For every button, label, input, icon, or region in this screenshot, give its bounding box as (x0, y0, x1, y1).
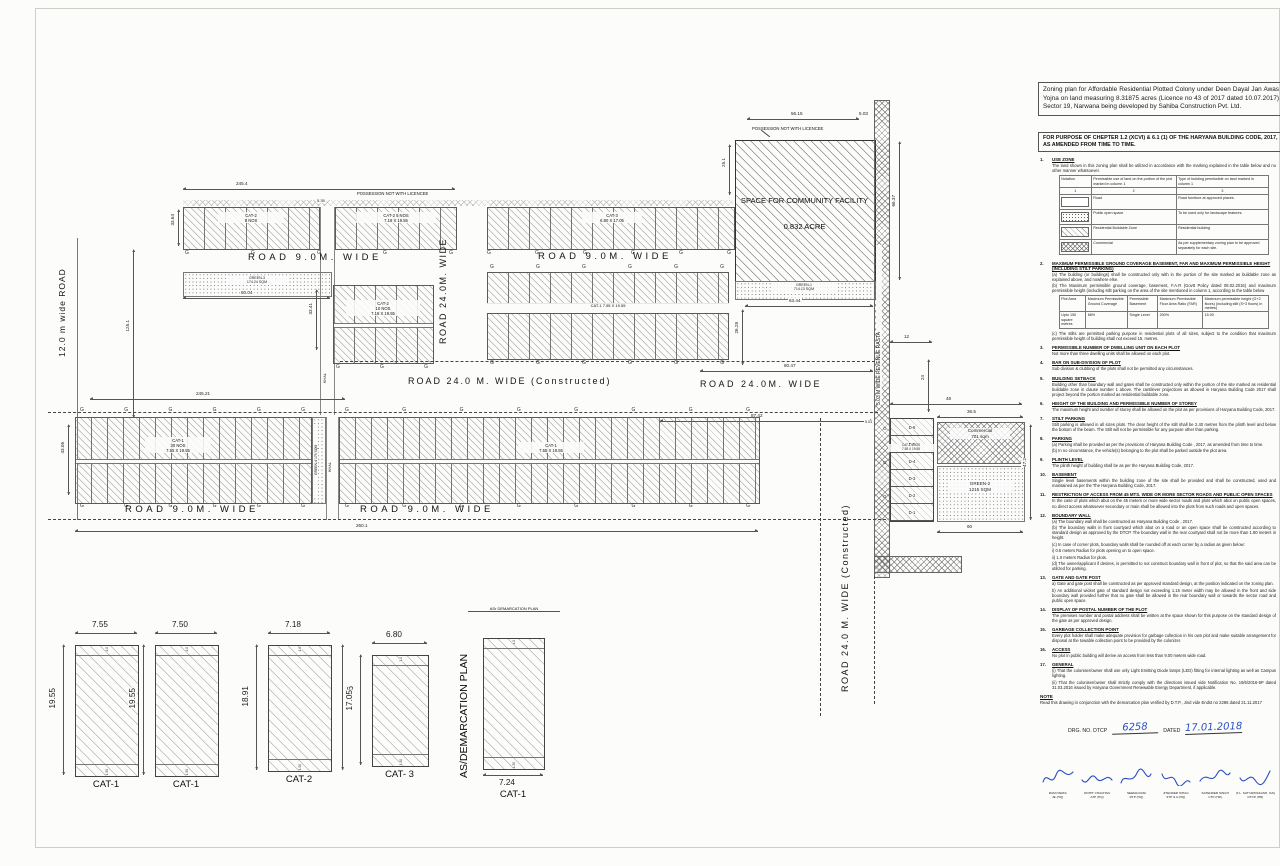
table-cell (1059, 210, 1091, 225)
table-cell: Residential building (1176, 225, 1269, 240)
signature-block: JITENDER SIHAGSTP & A (HQ) (1156, 768, 1195, 799)
note-paragraph: The plinth height of building shall be a… (1052, 463, 1276, 468)
plot-block-label-cat2-8nos: CAT-2 8 NOS (218, 212, 284, 223)
gate-mark: G (345, 503, 349, 509)
front-courtyard-line (156, 764, 218, 765)
plot-column-d: D-6D-5D-4D-3D-2D-1 (890, 418, 934, 522)
back-strip-dim: 1.0 (105, 647, 109, 651)
note-heading: MAXIMUM PERMISSIBLE GROUND COVERAGE BASE… (1052, 261, 1276, 271)
plot-d-cell: D-6 (891, 419, 933, 436)
gate-marks-row: GGGGGG (80, 407, 305, 413)
demarcation-depth-dim: 17.05 (345, 690, 354, 711)
note-paragraph: (c) In case of corner plots, boundary wa… (1052, 542, 1276, 547)
dim-label-36-5: 36.5 (966, 409, 977, 414)
demarcation-depth-dim: 18.91 (241, 686, 250, 707)
drg-dated-label: DATED (1163, 728, 1180, 734)
signatory-post: JE (HQ) (1039, 795, 1076, 799)
back-strip-dim: 1.0 (298, 647, 302, 651)
dim-line-36-5 (937, 417, 1023, 418)
road-24m-constructed-label: ROAD 24.0 M. WIDE (Constructed) (408, 376, 612, 386)
signatory-post: DTCP (HR) (1236, 795, 1275, 799)
front-courtyard-line (269, 759, 331, 760)
note-item: 13.GATE AND GATE POSTa) Gate and gate po… (1040, 575, 1276, 604)
table-cell: As per supplementary zoning plan to be a… (1176, 240, 1269, 255)
gate-mark: G (301, 407, 305, 413)
table-cell: 2 (1091, 188, 1176, 195)
plot-row-gap (334, 323, 433, 328)
gate-mark: G (746, 407, 750, 413)
demarcation-plot-2: 1.0 1.50 (155, 645, 219, 777)
note-body: GATE AND GATE POSTa) Gate and gate post … (1052, 575, 1276, 604)
note-number: 10. (1040, 472, 1049, 490)
gate-mark: G (679, 250, 683, 256)
note-number: 4. (1040, 360, 1049, 372)
note-heading: HEIGHT OF THE BUILDING AND PERMISSIBLE N… (1052, 401, 1276, 406)
green-label-line: 1215 SQM (948, 487, 1012, 493)
signature-block: (T.L. SATYAPRAKASH, IAS)DTCP (HR) (1235, 768, 1276, 799)
block-label-line: 7.55 X 19.55 (888, 448, 934, 452)
dim-label-63-44: 63.44 (788, 298, 802, 303)
table-cell: To be used only for landscape features. (1176, 210, 1269, 225)
note-item: 3.PERMISSIBLE NUMBER OF DWELLING UNIT ON… (1040, 345, 1276, 357)
green-1-label: GREEN-1 714.13 SQM (772, 283, 836, 292)
block-label-line: 7.55 X 19.55 (519, 448, 583, 453)
gate-mark: G (574, 407, 578, 413)
green-3-label: GREEN-3 174.24 SQM (227, 276, 287, 285)
dim-line-60-04 (183, 298, 330, 299)
note-number: 17. (1040, 662, 1049, 690)
note-heading: NOTE (1040, 694, 1274, 699)
signature-block: ROHIT CHAUHANATP (HQ) (1077, 768, 1116, 799)
table-header-cell: Type of building permissible on land mar… (1176, 176, 1269, 188)
note-item: 9.PLINTH LEVELThe plinth height of build… (1040, 457, 1276, 469)
dim-line-260-1 (75, 531, 758, 532)
demarcation-plot-5: 1.0 1.50 (483, 638, 545, 770)
drg-number-handwritten: 6258 (1112, 721, 1158, 735)
road-24m-label-right: ROAD 24.0M. WIDE (700, 379, 822, 389)
gate-mark: G (689, 407, 693, 413)
table-header-cell: Maximum Permissible Floor Area Ratio (FA… (1158, 296, 1203, 312)
dim-label-5-35: 5.35 (316, 198, 326, 203)
front-strip-dim: 1.50 (298, 764, 302, 770)
note-body: RESTRICTION OF ACCESS FROM 45 MTS. WIDE … (1052, 492, 1276, 510)
road-24m-centerline-upper (340, 361, 875, 362)
plot-d-cell: D-4 (891, 453, 933, 470)
dim-label-260-1: 260.1 (355, 523, 369, 528)
gate-mark: G (257, 407, 261, 413)
gate-marks-row: GGGGGGGG (345, 407, 750, 413)
note-body: BUILDING SETBACKBuilding other than boun… (1052, 376, 1276, 399)
road-9m-label-top-right: ROAD 9.0M. WIDE (538, 251, 672, 262)
plot-d-label: D-6 (908, 425, 917, 430)
dim-line-47-2 (1030, 425, 1031, 520)
gate-mark: G (720, 264, 724, 270)
road-9m-label-bottom-left: ROAD 9.0M. WIDE (125, 504, 259, 515)
road-9m-label-top-left: ROAD 9.0M. WIDE (248, 252, 382, 263)
green-2-label: GREEN-2 1215 SQM (948, 481, 1012, 492)
dim-label-245-4: 245.4 (235, 181, 249, 186)
note-body: MAXIMUM PERMISSIBLE GROUND COVERAGE BASE… (1052, 261, 1276, 343)
green-label-line: 714.13 SQM (772, 287, 836, 291)
table-cell: Residential Buildable Zone (1091, 225, 1176, 240)
gate-mark: G (689, 503, 693, 509)
back-courtyard-line (484, 648, 544, 649)
table-row: Upto 150 square metres66%Single Level200… (1059, 312, 1269, 328)
dim-label-12: 12 (903, 334, 910, 339)
block-label-line: 7.18 X 19.55 (357, 218, 435, 223)
community-facility-acreage: 0.832 ACRE (740, 222, 869, 231)
note-paragraph: b) An additional wicket gate of standard… (1052, 588, 1276, 603)
note-text: Read this drawing in conjunction with th… (1040, 700, 1274, 705)
front-courtyard-line (76, 764, 138, 765)
gate-mark: G (582, 264, 586, 270)
table-cell: 15.00 (1203, 312, 1269, 328)
note-heading: GATE AND GATE POST (1052, 575, 1276, 580)
drg-date-handwritten: 17.01.2018 (1185, 721, 1243, 735)
revenue-rasta-foot (874, 556, 962, 573)
front-strip-dim: 1.50 (512, 762, 516, 768)
table-cell: 66% (1086, 312, 1128, 328)
demarcation-depth-dim: 19.55 (128, 688, 137, 709)
revenue-rasta-label: 5.03 M WIDE REVENUE RASTA (876, 245, 882, 405)
note-body: PARKING(a) Parking shall be provided as … (1052, 436, 1276, 455)
signatory-post: STP & A (HQ) (1157, 795, 1194, 799)
road-24m-vertical-label: ROAD 24.0M. WIDE (438, 228, 448, 344)
gate-mark: G (517, 407, 521, 413)
note-item: 10.BASEMENTSingle level basements within… (1040, 472, 1276, 490)
dim-line-25-1 (729, 145, 730, 195)
block-label-line: 8 NOS (219, 218, 283, 223)
note-paragraph: (a) The building (or buildings) shall be… (1052, 272, 1276, 282)
demarcation-width-dim: 7.50 (172, 620, 188, 629)
note-number: 6. (1040, 401, 1049, 413)
front-strip-dim: 1.50 (185, 769, 189, 775)
road-24m-right-dashed-edge (820, 418, 821, 716)
possession-label-1: POSSESSION NOT WITH LICENCEE (357, 191, 428, 196)
signatory-post: ATP (HQ) (1078, 795, 1115, 799)
note-number: 2. (1040, 261, 1049, 343)
note-heading: ACCESS (1052, 647, 1276, 652)
front-strip-dim: 1.50 (399, 759, 403, 765)
demarcation-depth-dim-line (256, 645, 257, 770)
dim-line-12 (890, 342, 932, 343)
plot-block-label-cat1-30nos: CAT-1 30 NOS 7.55 X 19.55 (145, 437, 211, 453)
note-paragraph: (b) In no circumstance, the vehicle(s) b… (1052, 448, 1276, 453)
front-strip-dim: 1.50 (105, 769, 109, 775)
table-cell: 1 (1059, 188, 1091, 195)
dim-line-24 (928, 360, 929, 412)
note-item: 15.GARBAGE COLLECTION POINTEvery plot ho… (1040, 627, 1276, 645)
drg-number-line: DRG. NO. DTCP 6258 DATED 17.01.2018 (1068, 722, 1243, 734)
gate-mark: G (301, 503, 305, 509)
note-number: 3. (1040, 345, 1049, 357)
plot-d-cell: D-3 (891, 470, 933, 487)
table-cell: Commercial (1091, 240, 1176, 255)
note-paragraph: In the case of plots which abut on the 4… (1052, 498, 1276, 508)
note-body: GENERAL(i) That the coloniser/owner shal… (1052, 662, 1276, 690)
dim-line-26-28 (742, 310, 743, 365)
plot-block-cat1-row-lower (487, 313, 729, 360)
note-paragraph: (b) The Maximum permissible ground cover… (1052, 283, 1276, 293)
road-24m-constructed-vertical-label: ROAD 24.0 M. WIDE (Constructed) (840, 430, 850, 692)
gate-mark: G (517, 503, 521, 509)
table-row: Residential Buildable ZoneResidential bu… (1059, 225, 1269, 240)
note-heading: USE ZONE (1052, 157, 1276, 162)
note-heading: PARKING (1052, 436, 1276, 441)
notes-panel: Zoning plan for Affordable Residential P… (1038, 80, 1278, 846)
note-paragraph: (ii) That the coloniser/owner shall stri… (1052, 680, 1276, 690)
dim-label-24: 24 (919, 375, 926, 380)
signature-ink (1198, 768, 1232, 786)
dim-line-63-44 (745, 306, 873, 307)
plot-block-label-cat2-5nos: CAT-2 5 NOS 7.18 X 19.55 (356, 212, 436, 223)
khal-label-lower: KHAL (328, 452, 333, 482)
gate-mark: G (336, 364, 340, 370)
note-item: 11.RESTRICTION OF ACCESS FROM 45 MTS. WI… (1040, 492, 1276, 510)
dim-line-33-64 (178, 210, 179, 246)
table-header-cell: Maximum Permissible Ground Coverage (1086, 296, 1128, 312)
plot-d-label: D-3 (908, 476, 917, 481)
green-4-label: GREEN-4 175 SQM (314, 424, 318, 496)
use-zone-table: NotationPermissible use of land on the p… (1059, 175, 1270, 255)
signature-ink (1080, 768, 1114, 786)
table-row: Public open spaceTo be used only for lan… (1059, 210, 1269, 225)
gate-mark: G (883, 460, 887, 465)
signature-row: RAM NIWASJE (HQ)ROHIT CHAUHANATP (HQ)SEE… (1038, 768, 1276, 799)
gate-mark: G (168, 407, 172, 413)
demarcation-width-dim: 7.18 (285, 620, 301, 629)
dim-label-245-21: 245.21 (195, 391, 211, 396)
road-24m-right-edge-dashed (874, 576, 875, 704)
note-paragraph: ii) 1.0 meters Radius for plots. (1052, 555, 1276, 560)
demarcation-cat-label: CAT-1 (483, 789, 543, 800)
plot-block-cat1-long (339, 417, 760, 504)
note-heading: STILT PARKING (1052, 416, 1276, 421)
road-12m-label: 12.0 m wide ROAD (57, 222, 67, 357)
drawing-title: Zoning plan for Affordable Residential P… (1038, 82, 1280, 116)
table-cell: Public open space (1091, 210, 1176, 225)
back-courtyard-line (156, 655, 218, 656)
table-cell: 200% (1158, 312, 1203, 328)
gate-mark: G (402, 407, 406, 413)
dim-line-245-4 (183, 189, 455, 190)
demarcation-depth-dim-line (143, 645, 144, 775)
gate-mark: G (460, 407, 464, 413)
table-cell: Road (1091, 195, 1176, 210)
demarcation-small-title: ASr DEMARCATION PLAN (468, 606, 560, 612)
demarcation-depth-dim-line (360, 655, 361, 765)
note-number: 15. (1040, 627, 1049, 645)
note-number: 7. (1040, 416, 1049, 434)
gate-mark: G (490, 264, 494, 270)
note-body: USE ZONEThe land shown in this zoning pl… (1052, 157, 1276, 258)
zoning-notes-list: 1.USE ZONEThe land shown in this zoning … (1040, 157, 1276, 690)
note-heading: BUILDING SETBACK (1052, 376, 1276, 381)
back-strip-dim: 1.0 (512, 640, 516, 644)
note-item: 16.ACCESSNo plot in public building will… (1040, 647, 1276, 659)
front-courtyard-line (373, 754, 428, 755)
back-courtyard-line (76, 655, 138, 656)
plot-block-label-cat2-10nos: CAT-2 10 NOS 7.18 X 19.55 (346, 300, 420, 316)
note-heading: PERMISSIBLE NUMBER OF DWELLING UNIT ON E… (1052, 345, 1276, 350)
plot-row-gap (340, 459, 759, 464)
dim-label-56-15: 56.15 (790, 111, 804, 116)
dim-label-66-37: 66.37 (890, 195, 897, 207)
gate-mark: G (449, 250, 453, 256)
plot-d-label: D-1 (908, 510, 917, 515)
note-paragraph: (a) The boundary wall shall be construct… (1052, 519, 1276, 524)
gate-mark: G (628, 264, 632, 270)
signatory-post: DTP (HQ) (1118, 795, 1155, 799)
note-number: 1. (1040, 157, 1049, 258)
note-body: DISPLAY OF POSTAL NUMBER OF THE PLOTThe … (1052, 607, 1276, 625)
demarcation-plot-1: 1.0 1.50 (75, 645, 139, 777)
back-strip-dim: 1.0 (399, 657, 403, 661)
demarcation-plot-4: 1.0 1.50 (372, 655, 429, 767)
demarcation-depth-dim-line (63, 645, 64, 775)
dim-label-5-03-d: 5.03 (864, 420, 873, 424)
note-paragraph: Building other than boundary wall and ga… (1052, 382, 1276, 397)
note-heading: RESTRICTION OF ACCESS FROM 45 MTS. WIDE … (1052, 492, 1276, 497)
dim-line-56-15 (747, 119, 859, 120)
table-cell (1059, 225, 1091, 240)
dim-label-60: 60 (966, 524, 973, 529)
table-header-cell: Notation (1059, 176, 1091, 188)
dim-line-33-41 (316, 290, 317, 350)
dim-label-25-1: 25.1 (720, 158, 727, 167)
gate-mark: G (345, 407, 349, 413)
gate-marks-row: GGG (336, 364, 428, 370)
dim-line-48 (890, 404, 1022, 405)
gate-mark: G (424, 364, 428, 370)
note-heading: DISPLAY OF POSTAL NUMBER OF THE PLOT (1052, 607, 1276, 612)
community-facility-label: SPACE FOR COMMUNITY FACILITY (740, 196, 869, 205)
note-item: 1.USE ZONEThe land shown in this zoning … (1040, 157, 1276, 258)
table-row: Plot AreaMaximum Permissible Ground Cove… (1059, 296, 1269, 312)
table-row: 123 (1059, 188, 1269, 195)
dim-line-125-1 (133, 250, 134, 418)
purpose-heading: FOR PURPOSE OF CHEPTER 1.2 (XCVI) & 6.1 … (1038, 132, 1280, 152)
legend-swatch-residential (1061, 227, 1089, 237)
note-paragraph: Stilt parking is allowed in all sizes pl… (1052, 422, 1276, 432)
green-2-area (937, 466, 1025, 522)
note-paragraph: i) 0.5 meters Radius for plots opening o… (1052, 548, 1276, 553)
signature-block: SEEMA RANIDTP (HQ) (1117, 768, 1156, 799)
note-item: 6.HEIGHT OF THE BUILDING AND PERMISSIBLE… (1040, 401, 1276, 413)
demarcation-width-dim: 6.80 (386, 630, 402, 639)
note-item: 4.BAR ON SUB-DIVISION OF PLOTSub divisio… (1040, 360, 1276, 372)
table-cell (1059, 195, 1091, 210)
block-label-line: 6.80 X 17.05 (583, 218, 641, 223)
plot-block-label-cat1-long: CAT-1 7.55 X 19.55 (518, 442, 584, 453)
plot-block-label-cat1-mid: CAT-1 7.55 X 19.55 (487, 303, 729, 313)
dim-label-80-47: 80.47 (783, 363, 797, 368)
note-item: 2.MAXIMUM PERMISSIBLE GROUND COVERAGE BA… (1040, 261, 1276, 343)
as-demarcation-plan-label: AS/DEMARCATION PLAN (458, 630, 470, 778)
front-courtyard-line (484, 757, 544, 758)
plot-block-cat2-10nos (333, 285, 434, 364)
gate-mark: G (727, 250, 731, 256)
table-cell: Road furniture at approved places. (1176, 195, 1269, 210)
legend-swatch-commercial (1061, 242, 1089, 252)
dim-label-26-28: 26.28 (733, 322, 740, 334)
back-courtyard-line (373, 665, 428, 666)
signature-ink (1119, 768, 1153, 786)
note-paragraph: No plot in public building will derive a… (1052, 653, 1276, 658)
demarcation-cat-label: CAT-2 (268, 774, 330, 785)
signature-ink (1238, 768, 1272, 786)
note-paragraph: Sub division & clubbing of the plots sha… (1052, 366, 1276, 371)
boundary-hatch-band (183, 200, 733, 206)
gate-mark: G (124, 407, 128, 413)
note-item: 12.BOUNDARY WALL(a) The boundary wall sh… (1040, 513, 1276, 573)
gate-mark: G (383, 250, 387, 256)
road-9m-label-bottom-right: ROAD 9.0M. WIDE (360, 504, 494, 515)
dim-label-60-04: 60.04 (240, 290, 254, 295)
dim-label-33-64: 33.64 (169, 214, 176, 226)
gate-mark: G (574, 503, 578, 509)
note-paragraph: (i) That the coloniser/owner shall use o… (1052, 668, 1276, 678)
legend-swatch-open (1061, 212, 1089, 222)
signature-block: SATENDER SINGHCTP (HR) (1196, 768, 1235, 799)
note-heading: BASEMENT (1052, 472, 1276, 477)
plot-d-label: D-2 (908, 493, 917, 498)
dim-line-80-47 (700, 371, 873, 372)
table-cell: 3 (1176, 188, 1269, 195)
note-heading: BOUNDARY WALL (1052, 513, 1276, 518)
note-number: 16. (1040, 647, 1049, 659)
gate-mark: G (883, 494, 887, 499)
gate-mark: G (746, 503, 750, 509)
signature-ink (1041, 768, 1075, 786)
plot-block-label-cat3: CAT-3 6.80 X 17.05 (582, 212, 642, 223)
note-paragraph: Not more than three dwelling units shall… (1052, 351, 1276, 356)
note-item: 8.PARKING(a) Parking shall be provided a… (1040, 436, 1276, 455)
gate-mark: G (487, 250, 491, 256)
demarcation-width-dim-line (372, 643, 427, 644)
note-number: 13. (1040, 575, 1049, 604)
note-paragraph: The premises number and postal address s… (1052, 613, 1276, 623)
plot-column-d-label: CAT-1 6NOS 7.55 X 19.55 (888, 444, 934, 452)
note-number: 14. (1040, 607, 1049, 625)
table-cell: Single Level (1128, 312, 1158, 328)
dim-line-60 (937, 532, 1023, 533)
table-header-cell: Maximum permissible height (G+2 floors) … (1203, 296, 1269, 312)
demarcation-width-dim-line (268, 633, 330, 634)
note-number: 8. (1040, 436, 1049, 455)
demarcation-depth-right-dim-line (342, 645, 343, 770)
note-item: 5.BUILDING SETBACKBuilding other than bo… (1040, 376, 1276, 399)
coverage-table: Plot AreaMaximum Permissible Ground Cove… (1059, 295, 1270, 329)
note-body: STILT PARKINGStilt parking is allowed in… (1052, 416, 1276, 434)
demarcation-plot-3: 1.0 1.50 (268, 645, 332, 772)
block-label-line: 7.18 X 19.55 (347, 311, 419, 316)
dim-line-245-21 (90, 399, 345, 400)
note-paragraph: Single level basements within the buildi… (1052, 478, 1276, 488)
note-body: PERMISSIBLE NUMBER OF DWELLING UNIT ON E… (1052, 345, 1276, 357)
dim-line-66-37 (899, 142, 900, 280)
dim-label-43-06: 43.06 (59, 442, 66, 454)
plot-block-cat1-row-upper (487, 272, 729, 304)
table-header-cell: Permissible Basement (1128, 296, 1158, 312)
demarcation-width-dim-line (483, 775, 543, 776)
demarcation-cat-label: CAT-1 (155, 779, 217, 790)
note-paragraph: (b) The boundary walls in front courtyar… (1052, 525, 1276, 540)
note-item: 14.DISPLAY OF POSTAL NUMBER OF THE PLOTT… (1040, 607, 1276, 625)
note-body: BAR ON SUB-DIVISION OF PLOTSub division … (1052, 360, 1276, 372)
signature-ink (1159, 768, 1193, 786)
dim-label-47-2: 47.2 (1021, 458, 1028, 467)
